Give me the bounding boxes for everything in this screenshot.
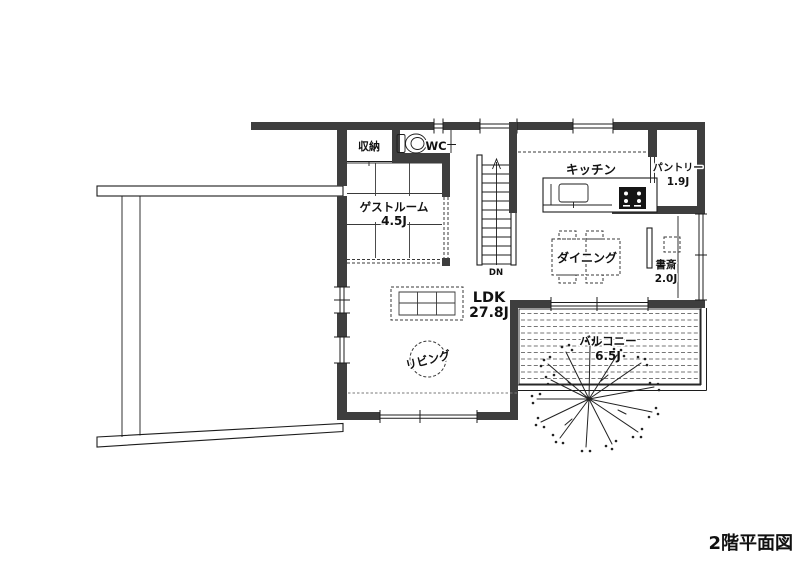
lower-roof-outline [97,186,343,447]
kitchen-counter [543,178,657,212]
pantry-label: パントリー [653,162,704,174]
study: 書斎 2.0J [647,216,680,298]
guest-room-size: 4.5J [381,214,407,228]
storage-room: 収納 [347,139,392,166]
wc-room: WC [397,130,456,153]
toilet-icon [397,134,427,153]
windows [334,119,707,424]
study-label: 書斎 [656,258,677,271]
wc-label: WC [425,139,446,153]
guest-room-label: ゲストルーム [360,200,429,214]
dining-area: ダイニング [552,231,620,283]
floor-plan-page: 収納 WC ゲストルーム 4.5J DN [0,0,800,566]
balcony-size: 6.5J [595,349,621,363]
dining-label: ダイニング [557,250,617,265]
kitchen: キッチン [518,152,657,212]
storage-label: 収納 [358,139,380,153]
sofa-icon [391,287,463,320]
stove-icon [619,187,646,209]
pantry-size: 1.9J [667,176,690,188]
study-size: 2.0J [655,273,678,285]
page-title: 2階平面図 [708,533,793,554]
kitchen-label: キッチン [566,162,616,177]
ldk-label: LDK [473,290,506,306]
stairs-direction-label: DN [489,268,503,278]
pantry: パントリー 1.9J [651,157,704,188]
staircase: DN [477,122,517,278]
ldk-label-group: LDK 27.8J [469,290,509,321]
guest-room: ゲストルーム 4.5J [347,163,448,263]
ldk-size: 27.8J [469,305,509,321]
balcony-label: バルコニー [579,334,636,348]
living-label: リビング [404,348,453,373]
